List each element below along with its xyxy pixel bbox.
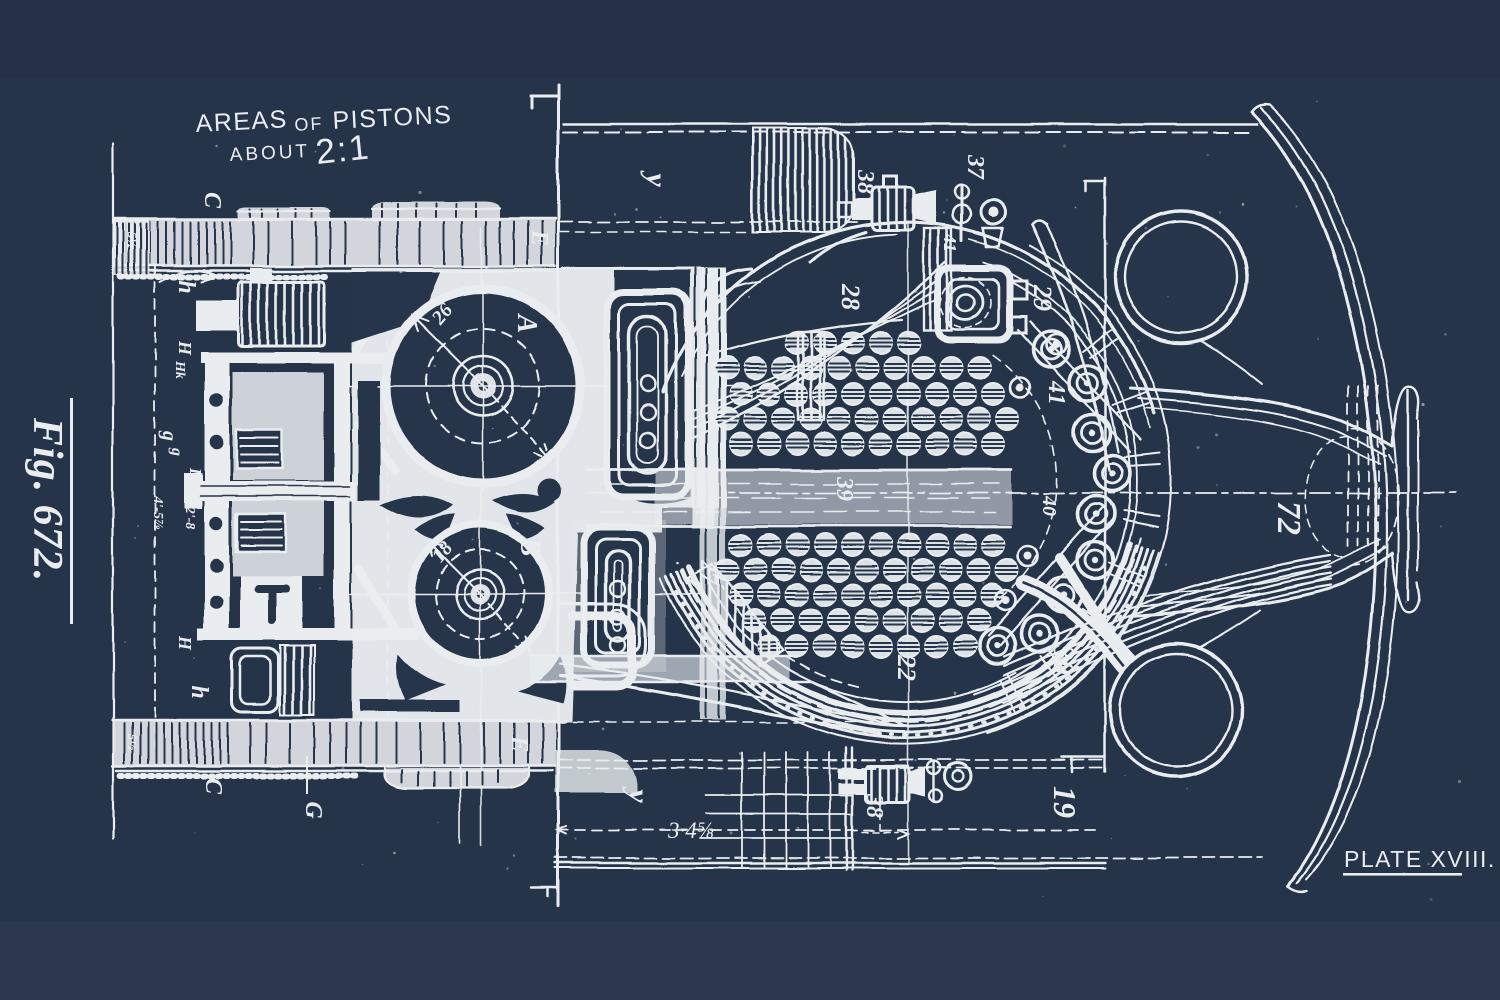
svg-text:A: A — [511, 313, 542, 334]
svg-text:E: E — [526, 229, 552, 246]
svg-text:5½: 5½ — [125, 734, 140, 751]
svg-text:5½: 5½ — [125, 232, 140, 249]
svg-text:19: 19 — [1047, 786, 1083, 818]
svg-text:H: H — [175, 635, 195, 651]
svg-text:38: 38 — [852, 169, 878, 194]
svg-text:29: 29 — [1028, 284, 1057, 311]
svg-text:37: 37 — [962, 154, 988, 180]
svg-text:y: y — [640, 170, 673, 187]
svg-text:D: D — [186, 467, 205, 480]
svg-text:72: 72 — [1270, 501, 1307, 535]
svg-text:H: H — [175, 340, 195, 356]
svg-text:22: 22 — [892, 654, 921, 681]
svg-text:AREAS: AREAS — [195, 105, 289, 138]
svg-text:C: C — [199, 192, 225, 209]
svg-text:g: g — [158, 430, 180, 441]
svg-text:E: E — [506, 735, 532, 752]
svg-text:3·4⅝: 3·4⅝ — [667, 818, 714, 843]
svg-text:39: 39 — [831, 476, 857, 501]
svg-text:30: 30 — [1047, 644, 1080, 675]
svg-text:h: h — [173, 280, 199, 293]
svg-text:28: 28 — [836, 283, 865, 310]
svg-text:4'-5⅞: 4'-5⅞ — [150, 495, 165, 530]
svg-text:ABOUT: ABOUT — [229, 141, 310, 166]
svg-text:y: y — [622, 786, 655, 803]
svg-text:B: B — [514, 537, 545, 557]
svg-text:2:1: 2:1 — [314, 127, 372, 171]
svg-text:41: 41 — [940, 233, 960, 252]
svg-text:2'-8: 2'-8 — [182, 506, 197, 530]
svg-text:38: 38 — [861, 793, 887, 818]
svg-text:G: G — [300, 801, 326, 819]
svg-text:C: C — [200, 778, 226, 795]
svg-text:40: 40 — [1038, 495, 1060, 516]
svg-text:41: 41 — [1043, 380, 1069, 405]
svg-text:g: g — [168, 447, 185, 456]
svg-text:PLATE XVIII.: PLATE XVIII. — [1344, 846, 1496, 872]
svg-text:h: h — [186, 685, 212, 698]
svg-text:27: 27 — [695, 559, 721, 585]
svg-text:Fig. 672.: Fig. 672. — [24, 417, 70, 582]
svg-text:Hk: Hk — [172, 360, 187, 379]
